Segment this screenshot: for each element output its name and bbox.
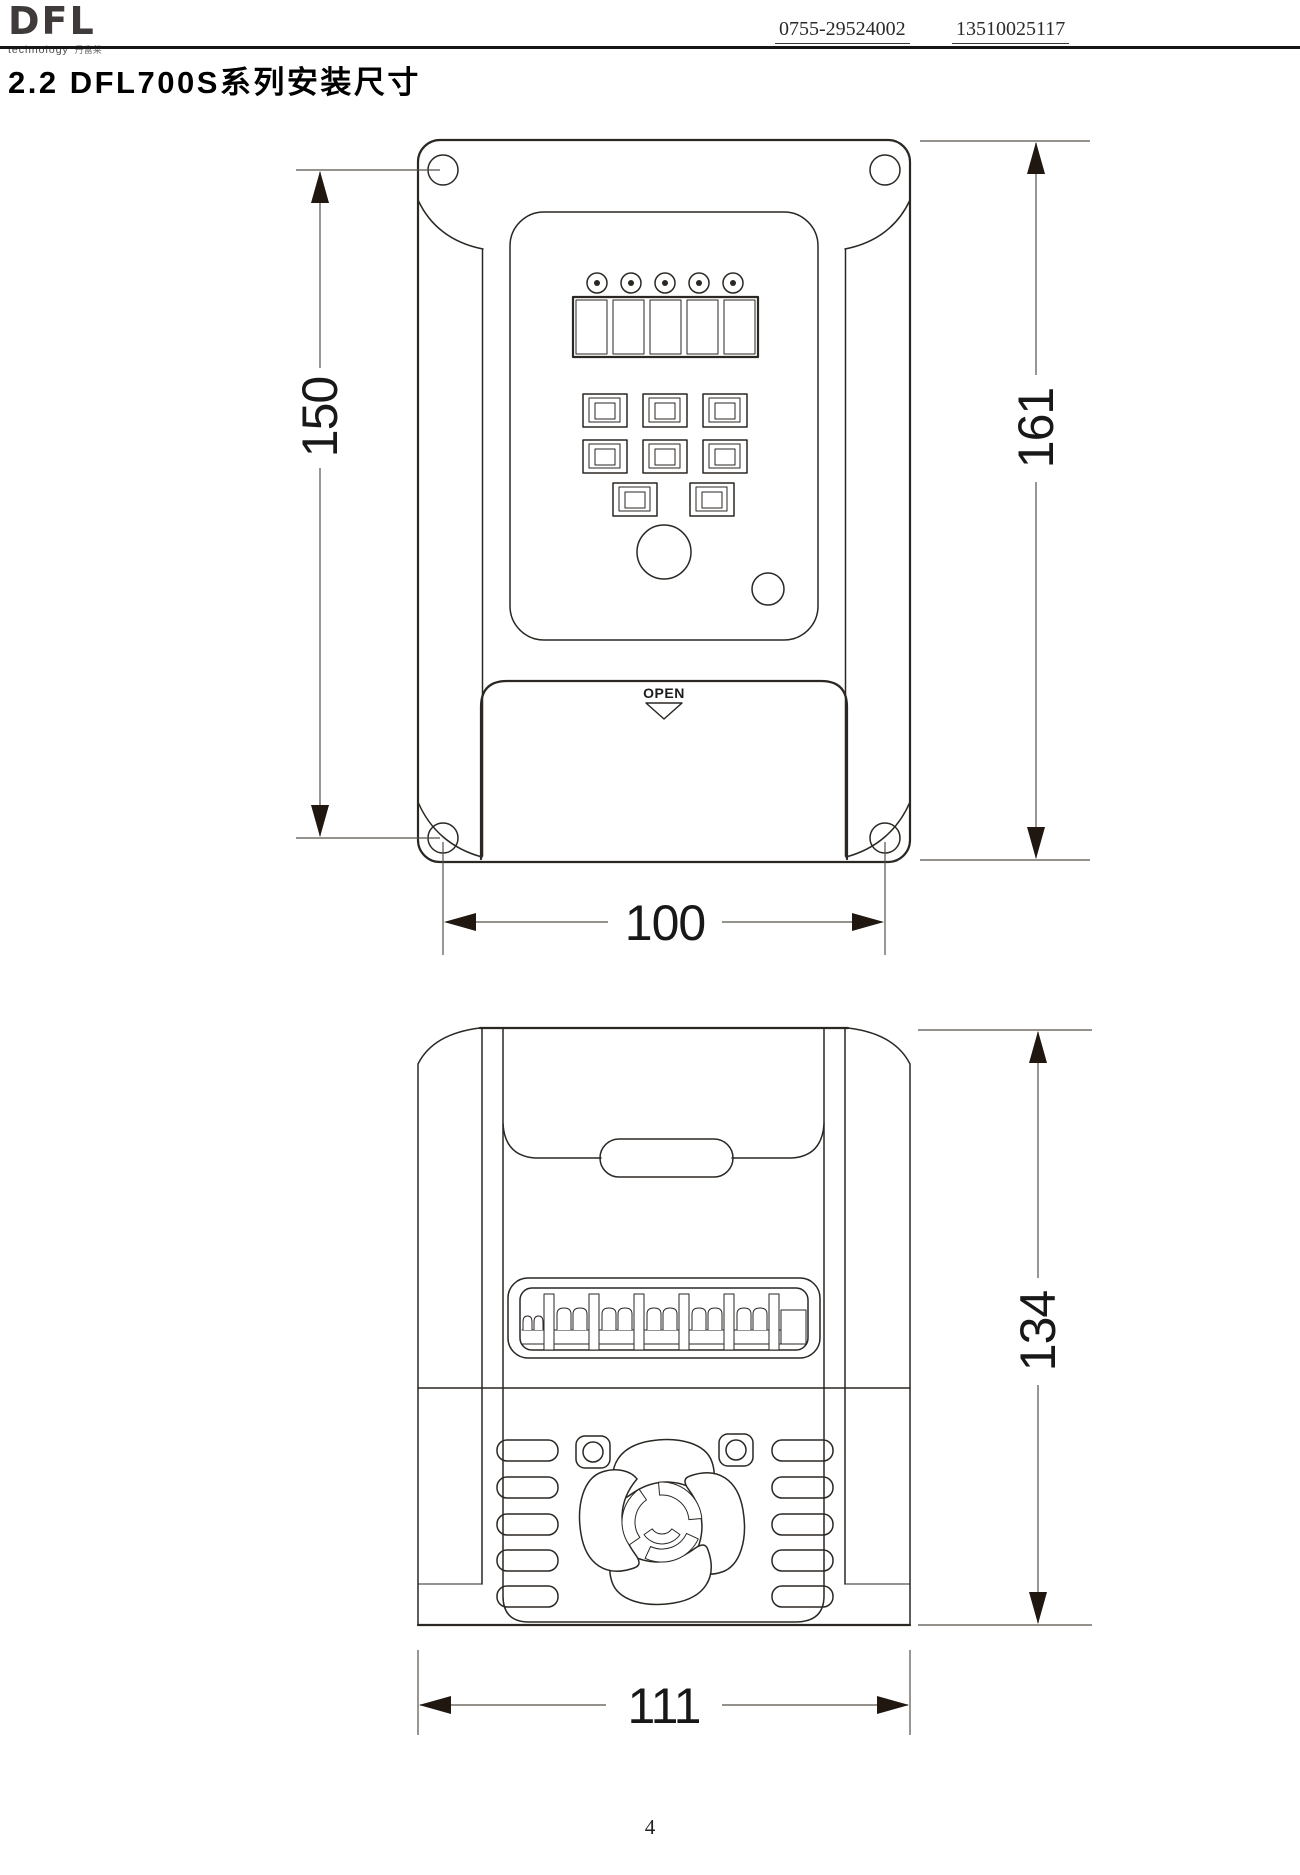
fan-screw-hole-right (726, 1440, 746, 1460)
terminal-separator (724, 1294, 734, 1350)
display-digit-cell (576, 300, 607, 354)
terminal-clamp (737, 1308, 751, 1330)
terminal-clamp (523, 1316, 532, 1330)
vent-slot (497, 1514, 558, 1535)
fan-screw-hole-left (583, 1442, 603, 1462)
cooling-fan (576, 1434, 753, 1604)
led-dot (730, 280, 736, 286)
keypad-button (703, 394, 747, 427)
terminal-separator (544, 1294, 554, 1350)
seven-segment-display (573, 297, 758, 357)
dimension-134: 134 (918, 1030, 1092, 1625)
fan-screw-pad-left (576, 1436, 610, 1468)
display-digit-cell (724, 300, 755, 354)
open-arrow-icon (646, 703, 682, 719)
terminal-separator (679, 1294, 689, 1350)
display-digit-cell (613, 300, 644, 354)
led-dot (594, 280, 600, 286)
terminal-separator (769, 1294, 779, 1350)
terminal-separator (589, 1294, 599, 1350)
keypad-button (703, 440, 747, 473)
open-label: OPEN (643, 685, 685, 701)
keypad-button (583, 394, 627, 427)
dimension-100: 100 (443, 842, 885, 955)
vent-slot (497, 1440, 558, 1461)
dim-161-label: 161 (1008, 388, 1064, 468)
display-frame (573, 297, 758, 357)
vent-slot (497, 1477, 558, 1498)
keypad-buttons (583, 394, 747, 516)
ear-curve-top-right (845, 200, 910, 249)
keypad-button (690, 483, 734, 516)
front-body-outline (418, 140, 910, 862)
dimension-161: 161 (920, 141, 1090, 860)
terminal-clamp (534, 1316, 543, 1330)
keypad-panel (510, 212, 818, 640)
keypad-button (643, 394, 687, 427)
vent-slot (497, 1550, 558, 1571)
dim-111-label: 111 (627, 1678, 700, 1734)
lid-edge-left (503, 1124, 601, 1158)
terminal-screws (522, 1294, 806, 1350)
fan-hub-center (644, 1529, 680, 1544)
led-dot (696, 280, 702, 286)
dimension-111: 111 (418, 1650, 910, 1735)
installation-dimension-drawing: OPEN 150 161 (0, 0, 1300, 1875)
dim-150-label: 150 (292, 377, 348, 457)
side-right-flange (848, 1028, 910, 1625)
display-digit-cell (687, 300, 718, 354)
terminal-clamp (663, 1308, 677, 1330)
terminal-end-block (781, 1310, 806, 1344)
lid-edge-right (732, 1124, 824, 1158)
lid-handle (600, 1139, 733, 1177)
terminal-clamp (647, 1308, 661, 1330)
indicator-circle (752, 573, 784, 605)
terminal-clamp (557, 1308, 571, 1330)
dim-134-label: 134 (1010, 1291, 1066, 1372)
fan-screw-pad-right (719, 1434, 753, 1466)
page-number: 4 (0, 1815, 1300, 1840)
dim-100-label: 100 (625, 895, 705, 951)
terminal-clamp (692, 1308, 706, 1330)
keypad-button (583, 440, 627, 473)
terminal-clamp (753, 1308, 767, 1330)
display-digit-cell (650, 300, 681, 354)
terminal-separator (634, 1294, 644, 1350)
side-view (418, 1028, 910, 1625)
terminal-clamp (602, 1308, 616, 1330)
keypad-button (643, 440, 687, 473)
front-view: OPEN (418, 140, 910, 862)
terminal-clamp (618, 1308, 632, 1330)
keypad-button (613, 483, 657, 516)
side-left-flange (418, 1028, 480, 1625)
led-dot (628, 280, 634, 286)
ear-curve-bottom-left (418, 802, 482, 857)
control-knob (637, 525, 691, 579)
manual-page: DFL technology丹富莱 0755-29524002 13510025… (0, 0, 1300, 1875)
ear-curve-top-left (418, 200, 483, 249)
terminal-clamp (708, 1308, 722, 1330)
fan-blades (580, 1440, 745, 1605)
mounting-hole-top-right (870, 155, 900, 185)
led-dot (662, 280, 668, 286)
terminal-clamp (573, 1308, 587, 1330)
led-indicators (587, 273, 743, 293)
vent-slot (497, 1586, 558, 1607)
ear-curve-bottom-right (846, 802, 910, 857)
